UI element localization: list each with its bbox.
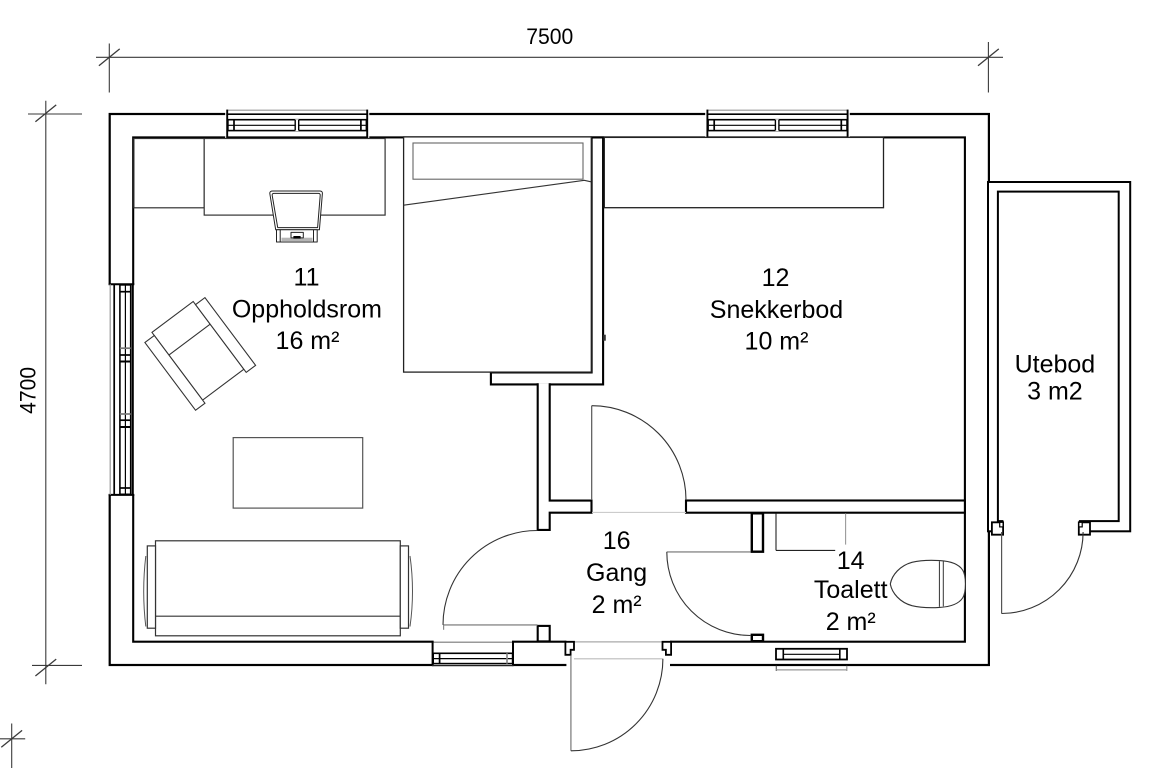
svg-text:12: 12: [762, 264, 790, 292]
svg-text:7500: 7500: [526, 24, 573, 49]
svg-text:3 m2: 3 m2: [1027, 377, 1083, 405]
svg-text:Oppholdsrom: Oppholdsrom: [232, 295, 382, 323]
svg-text:Utebod: Utebod: [1015, 350, 1096, 378]
svg-text:4700: 4700: [16, 367, 41, 414]
svg-text:14: 14: [837, 547, 865, 575]
svg-text:2 m²: 2 m²: [826, 608, 876, 636]
svg-text:16 m²: 16 m²: [276, 327, 340, 355]
svg-text:2 m²: 2 m²: [592, 591, 642, 619]
svg-text:Snekkerbod: Snekkerbod: [710, 296, 843, 324]
svg-text:11: 11: [294, 264, 320, 292]
svg-text:Gang: Gang: [586, 559, 647, 587]
svg-text:10 m²: 10 m²: [745, 328, 809, 356]
svg-text:16: 16: [603, 527, 631, 555]
svg-text:Toalett: Toalett: [814, 576, 888, 604]
